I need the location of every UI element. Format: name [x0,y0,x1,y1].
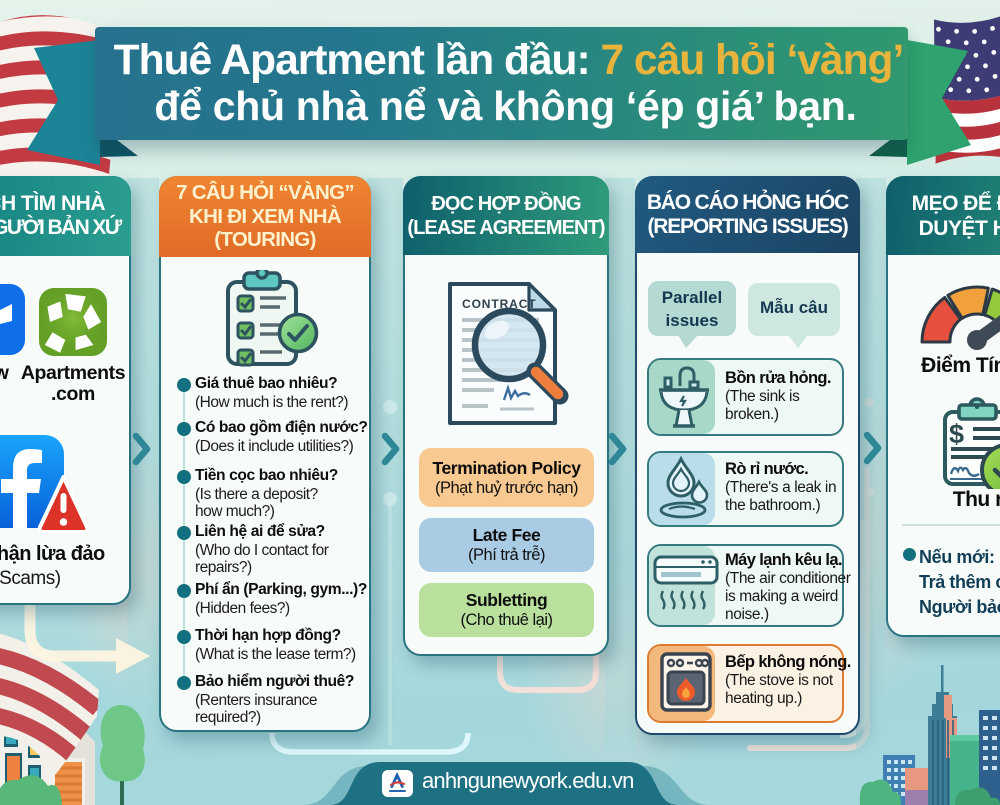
svg-text:CONTRACT: CONTRACT [462,297,537,311]
svg-text:$: $ [949,419,964,449]
